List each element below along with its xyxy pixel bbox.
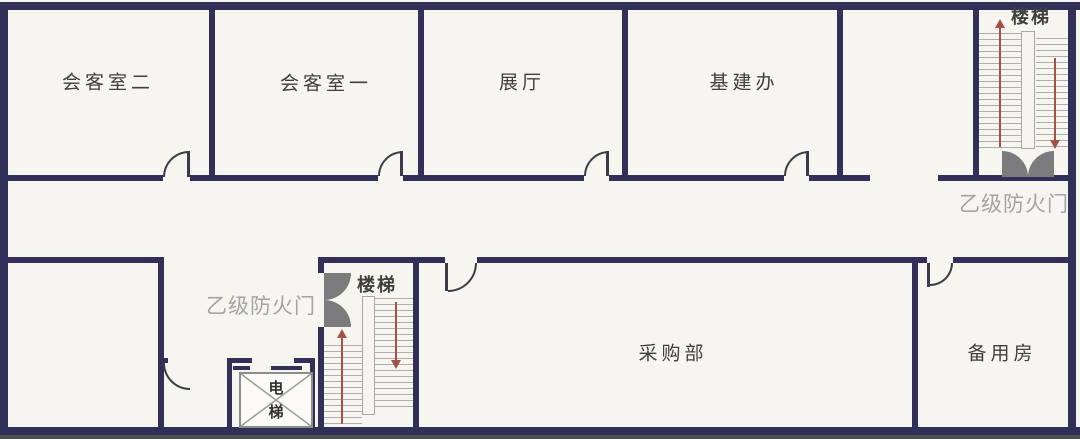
wall-elevator-left xyxy=(227,360,232,427)
wall-left-room xyxy=(158,257,164,427)
room-label-exhibition: 展厅 xyxy=(499,68,545,95)
elevator-label-bottom: 梯 xyxy=(268,400,283,424)
fire-door-label-top-right: 乙级防火门 xyxy=(959,188,1069,218)
wall-lobby-south xyxy=(227,358,252,363)
fire-door-leaf xyxy=(324,273,351,300)
elevator-door-dash xyxy=(233,366,250,370)
stairs-label-top: 楼梯 xyxy=(1011,3,1051,29)
floor-plan: 电 梯 会客室二 会客室一 展厅 基建办 采购部 备用房 楼梯 楼梯 乙级防火门… xyxy=(0,0,1080,439)
stair-treads xyxy=(1036,38,1068,148)
door-leaf-exhibition xyxy=(606,151,609,176)
wall-divider xyxy=(837,8,843,181)
wall-corridor-south xyxy=(953,257,1068,263)
wall-divider xyxy=(209,8,215,181)
stair-arrow-down-head xyxy=(391,360,401,369)
wall-corridor-north xyxy=(403,175,584,181)
wall-divider xyxy=(622,8,628,181)
door-leaf-infrastructure xyxy=(806,151,809,176)
room-label-spare-room: 备用房 xyxy=(967,339,1036,366)
stair-arrow-up xyxy=(341,337,343,424)
stair-stringer xyxy=(1021,31,1035,149)
room-label-infrastructure: 基建办 xyxy=(709,68,778,95)
fire-door-leaf xyxy=(1028,151,1054,177)
fire-door-leaf xyxy=(324,300,351,327)
door-leaf-reception2 xyxy=(187,151,190,177)
stairs-label-bottom: 楼梯 xyxy=(357,271,397,297)
wall-corridor-south xyxy=(318,257,445,263)
stair-treads xyxy=(375,298,413,411)
room-label-reception1: 会客室一 xyxy=(280,69,372,96)
wall-corridor-north xyxy=(8,175,163,181)
fire-door-label-lobby: 乙级防火门 xyxy=(206,290,316,320)
stair-treads xyxy=(324,345,362,424)
wall-lobby-south xyxy=(294,358,315,363)
stair-arrow-up xyxy=(999,27,1001,147)
room-label-reception2: 会客室二 xyxy=(62,68,154,95)
fire-door-leaf xyxy=(1002,151,1028,177)
wall-stairwell-right xyxy=(413,257,419,427)
wall-corridor-north xyxy=(809,175,870,181)
door-arc-lobby xyxy=(163,363,190,390)
wall-corridor-south xyxy=(477,257,927,263)
stair-arrow-up-head xyxy=(995,19,1005,28)
wall-outer-bottom xyxy=(0,427,1080,435)
elevator-door-dash xyxy=(271,366,302,370)
room-label-procurement: 采购部 xyxy=(638,339,707,366)
door-arc-procurement xyxy=(448,263,477,292)
stair-arrow-up-head xyxy=(337,329,347,338)
elevator-shaft: 电 梯 xyxy=(239,372,313,428)
elevator-label-top: 电 xyxy=(268,376,283,400)
wall-outer-left xyxy=(0,2,8,435)
wall-corridor-north xyxy=(190,175,378,181)
wall-corridor-south xyxy=(8,257,158,263)
wall-corridor-north xyxy=(609,175,784,181)
wall-outer-top xyxy=(0,2,1080,10)
stair-stringer xyxy=(362,296,375,415)
stair-arrow-down-head xyxy=(1050,140,1060,149)
bottom-edge-strip xyxy=(0,435,1080,439)
stair-arrow-down xyxy=(395,302,397,361)
wall-divider xyxy=(418,8,424,181)
door-leaf-reception1 xyxy=(400,151,403,176)
wall-outer-right xyxy=(1068,2,1076,435)
door-arc-reception2 xyxy=(163,151,189,177)
wall-stairwell-left xyxy=(318,257,324,273)
wall-procurement-spare-divider xyxy=(912,257,918,427)
door-arc-spare-room xyxy=(930,263,953,286)
stair-arrow-down xyxy=(1054,58,1056,141)
